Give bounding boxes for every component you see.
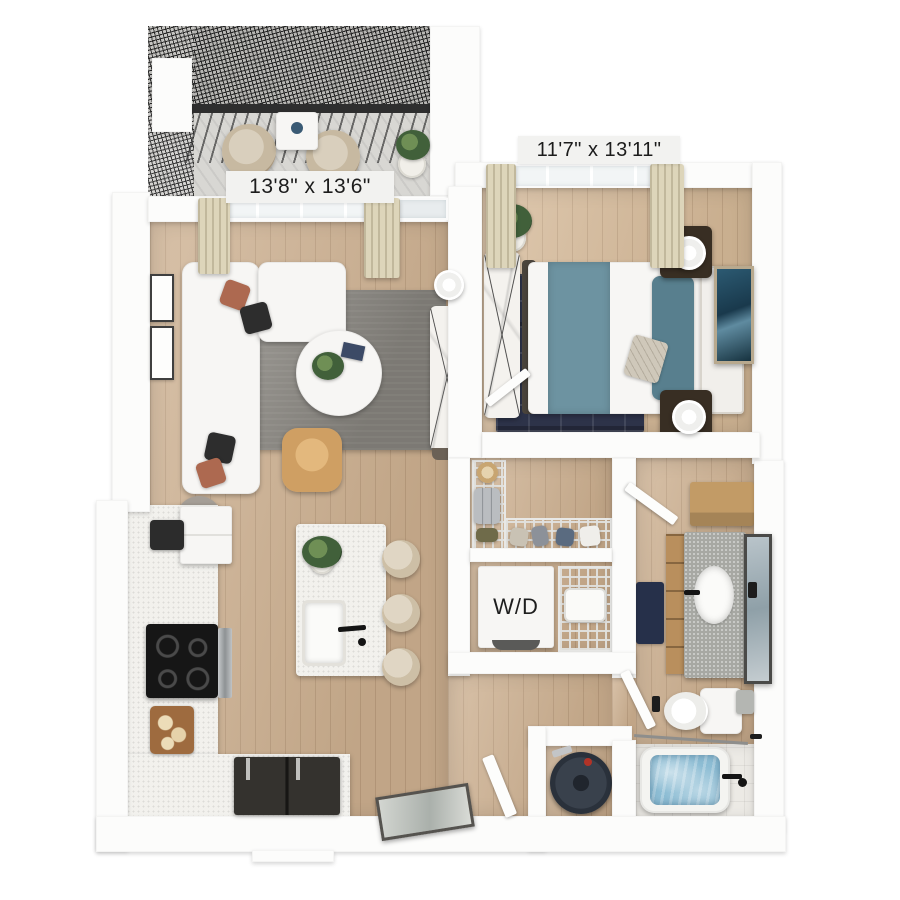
vanity-sink <box>694 566 734 624</box>
soap-dispenser <box>748 582 757 598</box>
closet-hat <box>477 462 498 483</box>
patio-table-decor <box>291 122 303 134</box>
water-heater <box>550 752 612 814</box>
wall-right-bedroom <box>752 162 782 464</box>
bed-teal-throw <box>548 262 610 414</box>
living-curtain-left <box>198 198 230 274</box>
living-wall-art <box>150 274 174 322</box>
bathroom-trash-bin <box>736 690 754 714</box>
living-room-dimensions-label: 13'8" x 13'6" <box>226 171 394 203</box>
vanity-faucet <box>684 590 700 595</box>
balcony-mesh-roof <box>148 26 478 112</box>
wall-living-bedroom-divider <box>448 186 482 458</box>
coffee-table-plant <box>312 352 344 380</box>
bedroom-window <box>502 164 664 188</box>
balcony-door <box>394 198 448 220</box>
balcony-left-pillar <box>152 58 192 132</box>
bathroom-leaning-mirror <box>744 534 772 684</box>
wall-closet-bottom <box>448 652 636 674</box>
wall-left-upper <box>112 192 150 512</box>
bar-stool <box>382 540 420 578</box>
hanging-clothes <box>476 528 498 542</box>
water-heater-valve <box>584 758 592 766</box>
bedroom-dimensions-label: 11'7" x 13'11" <box>518 136 680 164</box>
bathroom-wood-shelf <box>690 482 754 526</box>
toilet-bowl <box>664 692 708 730</box>
washer-dryer-unit: W/D <box>478 566 554 648</box>
balcony-plant <box>396 130 430 160</box>
hanging-clothes <box>509 527 529 547</box>
bar-stool <box>382 594 420 632</box>
hanging-clothes <box>530 525 549 547</box>
bar-stool <box>382 648 420 686</box>
bed-pillow-teal <box>652 276 694 400</box>
bathtub-water <box>650 755 720 805</box>
living-curtain-right <box>364 198 400 278</box>
wall-closet-left <box>448 458 470 676</box>
toilet-paper-holder <box>652 696 660 712</box>
wall-left-lower <box>96 500 128 850</box>
cooktop <box>146 624 218 698</box>
bathroom-wood-drawers <box>666 534 686 674</box>
nightstand-lamp <box>672 400 706 434</box>
washer-door-edge <box>492 640 540 650</box>
floor-plan-render: 13'8" x 13'6" 11'7" x 13'11" <box>0 0 900 900</box>
towel-hook <box>750 734 762 739</box>
hanging-clothes <box>579 525 601 547</box>
hanging-clothes <box>555 527 575 547</box>
kitchen-upper-cabinets <box>180 506 232 564</box>
living-table-lamp <box>434 270 464 300</box>
patio-chair <box>222 124 276 178</box>
tub-faucet-handle <box>738 778 747 787</box>
accent-chair <box>282 428 342 492</box>
island-sink <box>302 600 346 666</box>
laundry-basket <box>564 588 606 622</box>
closet-suitcase <box>474 488 500 524</box>
washer-dryer-label: W/D <box>493 594 539 620</box>
island-plant <box>302 536 342 568</box>
bedroom-curtain-right <box>650 164 684 268</box>
living-wall-art <box>150 326 174 380</box>
wall-bedroom-bottom <box>482 432 760 458</box>
cutting-board <box>150 706 194 754</box>
island-faucet-handle <box>358 638 366 646</box>
wall-closet-mid <box>470 548 612 562</box>
wall-bottom-step <box>252 850 334 862</box>
coffee-maker <box>150 520 184 550</box>
bedroom-curtain-left <box>486 164 516 268</box>
refrigerator-handle <box>246 758 250 780</box>
refrigerator-handle <box>296 758 300 780</box>
oven-stainless-edge <box>218 628 232 698</box>
bedroom-leaning-art <box>714 266 754 364</box>
bath-mat <box>636 582 664 644</box>
